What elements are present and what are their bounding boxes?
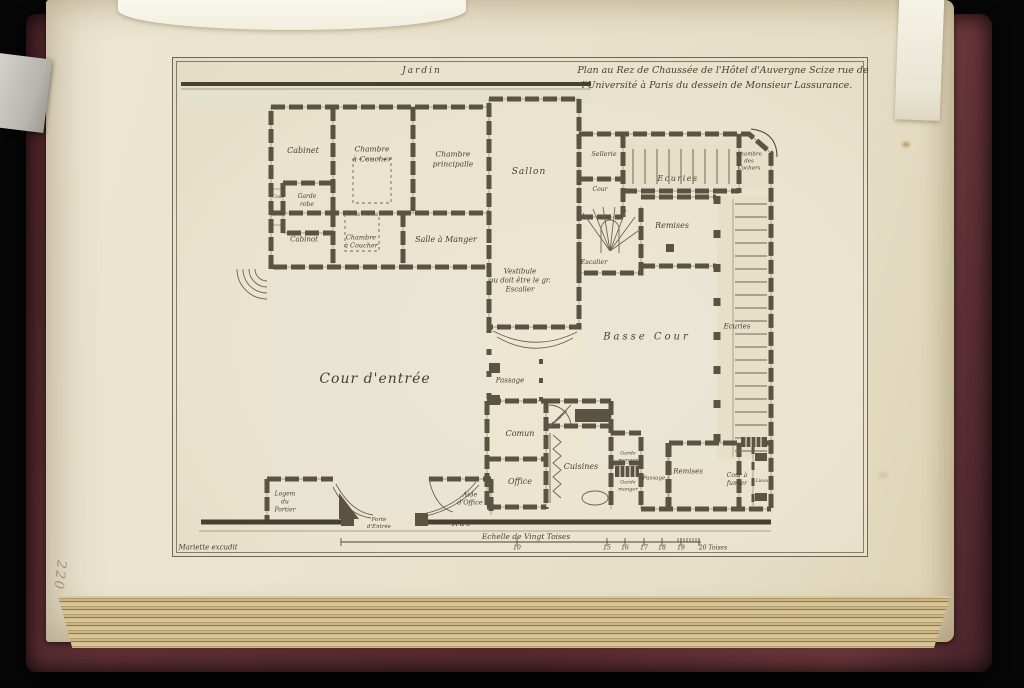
plan-label: Escalier <box>581 258 608 266</box>
plan-label: Passage <box>643 475 665 482</box>
plan-label: Echelle de Vingt Toises <box>482 532 570 542</box>
plan-label: Cour <box>593 186 608 194</box>
age-spot <box>876 470 890 480</box>
plan-label: Garde manger <box>618 480 638 493</box>
plan-label: Vestibule ou doit être le gr. Escalier <box>489 267 550 294</box>
scale-tick-label: 18 <box>658 545 666 552</box>
plan-label: Lieux <box>756 479 769 485</box>
plan-label: Chambre des Cochers <box>736 151 762 172</box>
plan-label: Basse Cour <box>603 331 691 344</box>
tissue-guard-right <box>895 0 945 121</box>
scale-tick-label: 20 Toises <box>699 545 727 552</box>
plan-label: Ecuries <box>657 174 698 184</box>
plan-label: Mariette excudit <box>178 543 237 552</box>
plan-label: Chambre à Coucher <box>353 144 392 164</box>
plan-label: Passage <box>496 376 525 385</box>
plan-label: Cour d'entrée <box>319 370 430 388</box>
plan-label: Cabinet <box>287 146 319 156</box>
plan-label: l'Université à Paris du dessein de Monsi… <box>582 80 853 92</box>
ribbon-left <box>0 53 52 133</box>
plate-labels-layer: JardinPlan au Rez de Chaussée de l'Hôtel… <box>173 58 867 556</box>
plan-label: Sellerie <box>591 150 616 158</box>
age-spot <box>900 140 912 149</box>
plan-label: Plan au Rez de Chaussée de l'Hôtel d'Auv… <box>577 65 868 77</box>
plan-label: Comun <box>506 429 535 439</box>
plan-label: Chambre principalle <box>433 149 474 169</box>
plan-label: Cour à fumier <box>727 472 747 488</box>
plan-label: Porte d'Entrée <box>367 517 391 531</box>
plan-label: Sallon <box>512 167 547 179</box>
plan-label: Cuisines <box>564 462 599 472</box>
plan-label: Remises <box>673 467 703 476</box>
photograph-of-open-book: { "page": { "page_number": "220" }, "pla… <box>0 0 1024 688</box>
plan-label: Salle à Manger <box>415 235 477 245</box>
plan-label: Aide d'Office <box>457 491 482 508</box>
plan-label: Logem du Portier <box>274 490 295 513</box>
plan-label: Remises <box>655 221 689 231</box>
plan-label: Cabinot <box>290 235 318 244</box>
plan-label: Cour <box>272 195 283 201</box>
plan-label: Ecuries <box>724 322 751 331</box>
engraved-plate: JardinPlan au Rez de Chaussée de l'Hôtel… <box>172 57 868 557</box>
plan-label: Garde manger <box>618 451 638 464</box>
scale-tick-label: 19 <box>677 545 685 552</box>
plan-label: Office <box>508 477 532 487</box>
plan-label: Garde robe <box>298 193 317 209</box>
book-page-edges <box>58 596 950 648</box>
plan-label: Rue <box>452 519 472 529</box>
plan-label: Jardin <box>402 66 442 78</box>
scale-tick-label: 15 <box>603 545 611 552</box>
scale-tick-label: 17 <box>640 545 648 552</box>
plan-label: Chambre à Coucher <box>344 234 378 251</box>
scale-tick-label: 16 <box>621 545 629 552</box>
scale-tick-label: 10 <box>513 545 521 552</box>
